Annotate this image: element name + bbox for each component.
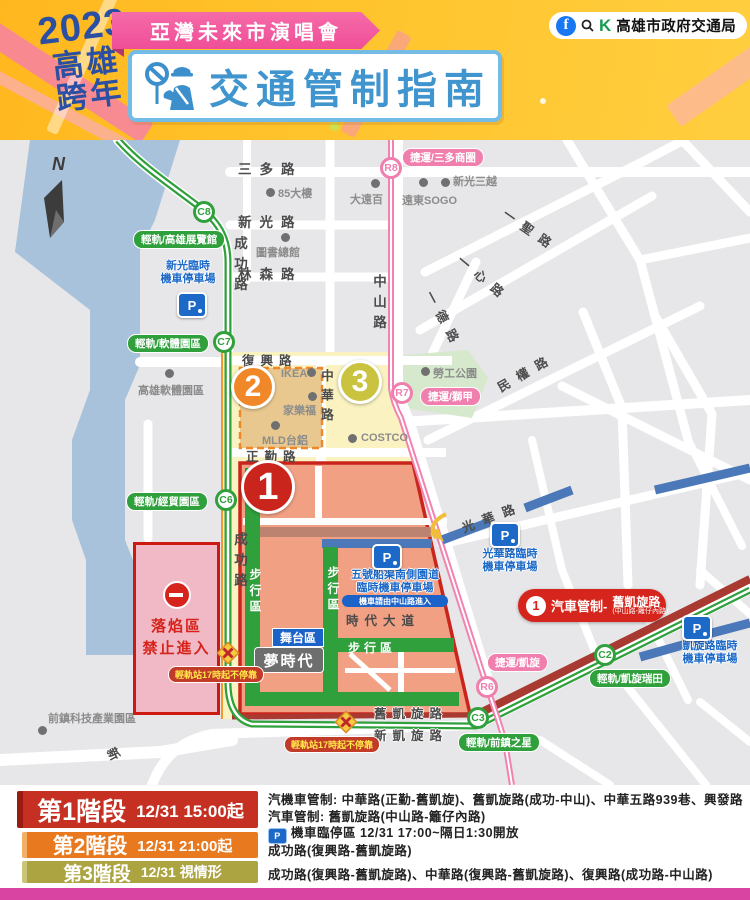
- walk-zone-label: 步行區: [247, 568, 264, 616]
- landmark-dot: [281, 233, 290, 242]
- parking-kaixuan-line1: 凱旋路臨時: [683, 640, 738, 652]
- road-label-jiu-kaixuan: 舊凱旋路: [374, 703, 448, 722]
- title-panel: 交通管制指南: [128, 50, 502, 122]
- landmark-carrefour: 家樂福: [283, 402, 316, 418]
- road-label-xin-kaixuan: 新凱旋路: [374, 725, 448, 744]
- landmark-qianzhen-park: 前鎮科技產業園區: [48, 710, 136, 726]
- station-c7: C7: [213, 331, 235, 353]
- road-label-zhongshan: 中山路: [368, 274, 388, 336]
- station-label-c8: 輕軌/高雄展覽館: [133, 230, 225, 249]
- station-r6: R6: [476, 676, 498, 698]
- facebook-bureau-button[interactable]: f K 高雄市政府交通局: [549, 12, 747, 39]
- dream-mall-label: 夢時代: [254, 647, 324, 673]
- traffic-police-icon: [144, 58, 202, 114]
- station-c8: C8: [193, 201, 215, 223]
- landmark-dot: [348, 434, 357, 443]
- station-label-c7: 輕軌/軟體園區: [127, 334, 209, 353]
- landmark-shinkong: 新光三越: [453, 173, 497, 189]
- parking-wuhao-line2: 臨時機車停車場: [357, 582, 434, 594]
- crossing-icon: [334, 710, 358, 734]
- road-label-xinguang: 新光路: [238, 211, 303, 231]
- bureau-name: 高雄市政府交通局: [616, 15, 736, 36]
- phase1-time: 12/31 15:00起: [136, 797, 244, 822]
- station-label-c6: 輕軌/經貿園區: [126, 492, 208, 511]
- phase2-name: 第2階段: [53, 830, 128, 860]
- crossing-icon: [216, 641, 240, 665]
- falling-embers-no-entry-zone: 落焰區 禁止進入: [133, 542, 220, 715]
- phase3-time: 12/31 視情形: [141, 862, 222, 882]
- road-label-chenggong-south: 成功路: [229, 532, 249, 594]
- walk-zone-label: 步行區: [348, 639, 396, 656]
- parking-xinguang-line1: 新光臨時: [166, 260, 210, 272]
- footer-accent-bar: [0, 888, 750, 900]
- phase2-time: 12/31 21:00起: [137, 835, 232, 856]
- traffic-control-map: N 三多路 新光路 林森路 復興路 正勤路 時代大道 舊凱旋路 新凱旋路 新 成…: [0, 140, 750, 785]
- landmark-costco: COSTCO: [361, 432, 408, 444]
- phase2-bar: 第2階段 12/31 21:00起: [22, 832, 258, 858]
- parking-icon-kaixuan: P: [682, 615, 712, 641]
- parking-text-xinguang: 新光臨時 機車停車場: [148, 260, 228, 286]
- landmark-library: 圖書總館: [256, 244, 300, 260]
- phase1-name: 第1階段: [37, 792, 126, 828]
- phase1-line3-text: 機車臨停區 12/31 17:00~隔日1:30開放: [291, 826, 519, 840]
- phase2-detail-line: 成功路(復興路-舊凱旋路): [268, 840, 412, 859]
- landmark-dot: [266, 188, 275, 197]
- landmark-dayuanbai: 大遠百: [350, 191, 383, 207]
- map-canvas: [0, 140, 750, 785]
- station-label-r7: 捷運/獅甲: [420, 387, 481, 406]
- no-entry-line2: 禁止進入: [136, 637, 217, 658]
- poster-page: 2023 高雄 跨年 亞灣未來市演唱會 交通管制指南 f: [0, 0, 750, 900]
- page-title: 交通管制指南: [202, 57, 498, 115]
- landmark-sogo: 遠東SOGO: [402, 192, 457, 208]
- compass-n-label: N: [52, 154, 65, 175]
- road-label-sanduo: 三多路: [238, 158, 303, 178]
- station-r7: R7: [391, 382, 413, 404]
- station-label-r6: 捷運/凱旋: [487, 653, 548, 672]
- parking-icon-guanghua: P: [490, 522, 520, 548]
- station-label-c2: 輕軌/凱旋瑞田: [589, 669, 671, 688]
- road-label-zhonghua: 中華路: [317, 369, 336, 428]
- station-label-c3: 輕軌/前鎮之星: [458, 733, 540, 752]
- phase3-detail-line: 成功路(復興路-舊凱旋路)、中華路(復興路-舊凱旋路)、復興路(成功路-中山路): [268, 864, 713, 883]
- car-control-road: 舊凱旋路: [612, 596, 668, 609]
- parking-kaixuan-line2: 機車停車場: [683, 653, 738, 665]
- phase-legend: 第1階段 12/31 15:00起 第2階段 12/31 21:00起 第3階段…: [0, 785, 750, 888]
- parking-guanghua-line2: 機車停車場: [483, 561, 538, 573]
- car-control-label: 汽車管制-: [551, 596, 607, 615]
- station-r8: R8: [380, 157, 402, 179]
- event-banner-text: 亞灣未來市演唱會: [150, 16, 342, 45]
- road-label-chenggong-north: 成功路: [229, 236, 249, 298]
- road-label-shidai: 時代大道: [346, 610, 420, 629]
- landmark-dot: [371, 179, 380, 188]
- lrt-no-stop-note: 輕軌站17時起不停靠: [168, 666, 264, 683]
- zone1-number: 1: [241, 460, 295, 514]
- station-label-r8: 捷運/三多商圈: [402, 148, 484, 167]
- decor-dot: [330, 122, 339, 131]
- decor-ray: [666, 31, 750, 127]
- parking-text-wuhao: 五號船渠南側園道 臨時機車停車場: [340, 569, 450, 595]
- landmark-dot: [38, 726, 47, 735]
- event-banner-ribbon: 亞灣未來市演唱會: [112, 12, 380, 49]
- landmark-dot: [307, 368, 316, 377]
- parking-icon-wuhao: P: [372, 544, 402, 570]
- no-entry-line1: 落焰區: [136, 615, 217, 636]
- parking-wuhao-line1: 五號船渠南側園道: [351, 569, 439, 581]
- decor-dot: [540, 98, 546, 104]
- zone3-number: 3: [338, 360, 382, 404]
- header: 2023 高雄 跨年 亞灣未來市演唱會 交通管制指南 f: [0, 0, 750, 140]
- compass-needle-icon: [36, 176, 76, 242]
- landmark-dot: [165, 369, 174, 378]
- parking-icon-xinguang: P: [177, 292, 207, 318]
- station-c3: C3: [467, 707, 489, 729]
- landmark-mld: MLD台鋁: [262, 432, 308, 448]
- facebook-icon: f: [556, 16, 576, 36]
- landmark-dot: [441, 178, 450, 187]
- phase3-bar: 第3階段 12/31 視情形: [22, 861, 258, 883]
- station-c2: C2: [594, 644, 616, 666]
- landmark-tower85: 85大樓: [278, 185, 312, 201]
- parking-wuhao-note: 機車請由中山路進入: [342, 595, 448, 607]
- car-control-sub: (中山路-籬仔內路): [612, 608, 668, 615]
- landmark-dot: [308, 392, 317, 401]
- landmark-dot: [271, 421, 280, 430]
- parking-text-guanghua: 光華路臨時 機車停車場: [468, 548, 552, 574]
- parking-guanghua-line1: 光華路臨時: [483, 548, 538, 560]
- phase1-bar: 第1階段 12/31 15:00起: [17, 791, 258, 828]
- landmark-ikea: IKEA: [281, 368, 307, 380]
- phase3-name: 第3階段: [63, 859, 131, 886]
- stage-area-label: 舞台區: [272, 628, 324, 647]
- landmark-dot: [421, 367, 430, 376]
- car-control-number: 1: [526, 596, 546, 616]
- landmark-software-park: 高雄軟體園區: [138, 382, 204, 398]
- parking-xinguang-line2: 機車停車場: [161, 273, 216, 285]
- car-control-badge: 1 汽車管制- 舊凱旋路 (中山路-籬仔內路): [518, 589, 666, 622]
- parking-text-kaixuan: 凱旋路臨時 機車停車場: [666, 640, 750, 666]
- zone2-number: 2: [231, 365, 275, 409]
- station-c6: C6: [215, 489, 237, 511]
- no-entry-icon: [163, 581, 191, 609]
- landmark-labor-park: 勞工公園: [433, 365, 477, 381]
- lrt-no-stop-note: 輕軌站17時起不停靠: [284, 736, 380, 753]
- search-icon: [581, 19, 594, 32]
- landmark-dot: [419, 178, 428, 187]
- bureau-logo-icon: K: [599, 16, 611, 36]
